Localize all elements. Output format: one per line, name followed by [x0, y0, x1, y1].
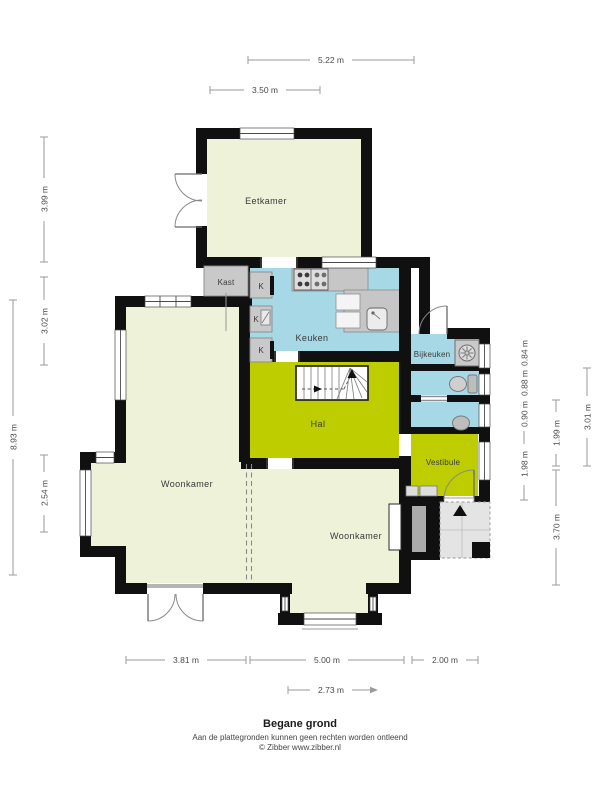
credit-text: © Zibber www.zibber.nl [259, 743, 341, 752]
dim-right-0: 0.84 m [520, 340, 530, 366]
fireplace-niche [389, 504, 401, 550]
entry-porch [440, 502, 490, 558]
boiler-icon [261, 310, 270, 325]
window [322, 257, 376, 268]
dim-left-1: 3.02 m [40, 308, 50, 334]
label-bijkeuken: Bijkeuken [414, 350, 451, 359]
floorplan-drawing: Eetkamer Kast K K K Keuken Bijkeuken Hal… [0, 0, 600, 800]
dim-top-1: 3.50 m [252, 85, 278, 95]
basin-icon [453, 416, 470, 430]
room-woonkamer-left-bay [86, 458, 128, 551]
page-title: Begane grond [263, 718, 337, 730]
window [479, 344, 490, 368]
window [479, 374, 490, 395]
label-k2: K [253, 315, 259, 324]
label-k1: K [258, 282, 264, 291]
window [80, 470, 91, 536]
dim-bottom-2: 2.00 m [432, 655, 458, 665]
window [479, 404, 490, 427]
floorplan-page: Eetkamer Kast K K K Keuken Bijkeuken Hal… [0, 0, 600, 800]
dim-left-3: 2.54 m [40, 480, 50, 506]
window [115, 330, 126, 400]
dim-top-0: 5.22 m [318, 55, 344, 65]
room-woonkamer-right [247, 462, 403, 589]
window [479, 442, 490, 480]
chimney-flue [412, 506, 426, 552]
disclaimer-text: Aan de plattegronden kunnen geen rechten… [192, 733, 407, 742]
dim-right-4: 1.99 m [552, 420, 562, 446]
dim-left-0: 3.99 m [40, 186, 50, 212]
dim-right-1: 0.88 m [520, 370, 530, 396]
label-woonkamer-left: Woonkamer [161, 479, 213, 489]
toilet-icon [450, 375, 478, 393]
label-keuken: Keuken [296, 333, 329, 343]
label-kast: Kast [218, 278, 235, 287]
dim-bottom-1: 5.00 m [314, 655, 340, 665]
dim-right-3: 1.98 m [520, 451, 530, 477]
dim-right-5: 3.70 m [552, 514, 562, 540]
meter-cupboard [406, 486, 437, 496]
dim-bottom-0: 3.81 m [173, 655, 199, 665]
window [282, 597, 288, 611]
window [145, 296, 191, 307]
label-k3: K [258, 346, 264, 355]
dim-left-2: 8.93 m [9, 424, 19, 450]
label-vestibule: Vestibule [426, 458, 461, 467]
dim-right-2: 0.90 m [520, 401, 530, 427]
window [304, 613, 356, 625]
room-washroom [411, 398, 479, 432]
label-hal: Hal [311, 419, 326, 429]
label-eetkamer: Eetkamer [245, 196, 287, 206]
window [370, 597, 376, 611]
sink-icon [367, 308, 387, 330]
stairs-icon [296, 366, 368, 400]
footer: Begane grond Aan de plattegronden kunnen… [192, 718, 407, 752]
stove-icon [294, 269, 328, 290]
dim-bottom-3: 2.73 m [318, 685, 344, 695]
washing-machine-icon [455, 340, 479, 366]
window [96, 452, 114, 463]
room-woonkamer-left [121, 301, 247, 589]
label-woonkamer-right: Woonkamer [330, 531, 382, 541]
dim-right-6: 3.01 m [583, 404, 593, 430]
window [240, 128, 294, 139]
